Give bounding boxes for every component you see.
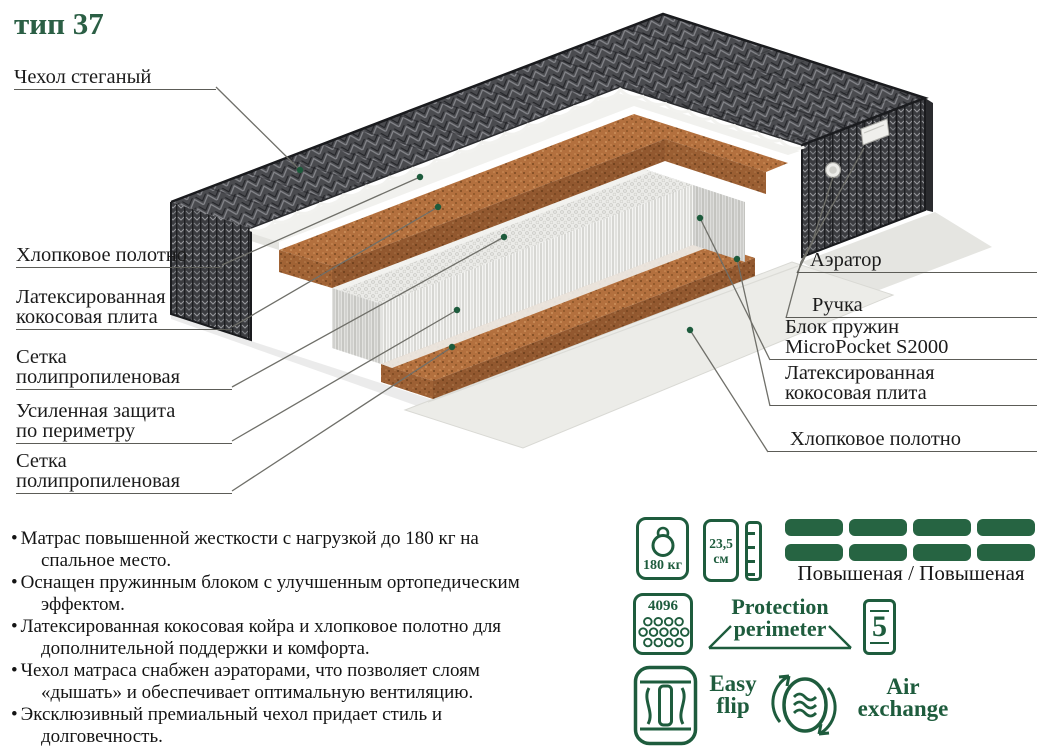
firmness-bars-icon — [785, 519, 1037, 561]
firmness-bar — [849, 544, 907, 561]
label-handle: Ручка — [786, 292, 1037, 318]
badge-max-weight: 180 кг — [636, 517, 689, 580]
label-aerator: Аэратор — [797, 247, 1037, 273]
firmness-bar — [913, 519, 971, 536]
feature-list: Матрас повышенной жесткости с нагрузкой … — [4, 528, 526, 748]
label-cotton-fabric-right: Хлопковое полотно — [768, 426, 1037, 452]
firmness-label: Повышеная / Повышеная — [783, 561, 1039, 586]
label-perimeter-protection: Усиленная защита по периметру — [16, 398, 232, 444]
badge-springs-count: 4096 — [633, 593, 693, 655]
firmness-bar — [977, 544, 1035, 561]
page-title: тип 37 — [14, 6, 104, 42]
label-cotton-fabric-left: Хлопковое полотно — [16, 238, 222, 268]
list-item: Чехол матраса снабжен аэраторами, что по… — [4, 660, 526, 704]
springs-dots-icon — [636, 616, 690, 652]
aerator — [826, 163, 841, 178]
label-quilted-cover: Чехол стеганый — [14, 58, 216, 90]
firmness-bar — [913, 544, 971, 561]
label-spring-block: Блок пружин MicroPocket S2000 — [770, 318, 1037, 360]
badge-protection-perimeter: Protection perimeter — [705, 596, 855, 652]
firmness-bar — [849, 519, 907, 536]
label-polypropylene-mesh-1: Сетка полипропиленовая — [16, 342, 232, 390]
label-coconut-plate-left: Латексированная кокосовая плита — [16, 282, 232, 330]
firmness-bar — [785, 544, 843, 561]
easy-flip-label: Easy flip — [702, 673, 764, 717]
easy-flip-icon — [633, 665, 698, 746]
list-item: Оснащен пружинным блоком с улучшенным ор… — [4, 572, 526, 616]
firmness-bar — [785, 519, 843, 536]
list-item: Матрас повышенной жесткости с нагрузкой … — [4, 528, 526, 572]
kettlebell-icon — [648, 524, 678, 558]
label-polypropylene-mesh-2: Сетка полипропиленовая — [16, 448, 232, 494]
badge-height: 23,5 см — [703, 519, 739, 582]
ruler-icon — [745, 521, 762, 581]
air-exchange-icon — [768, 662, 840, 748]
list-item: Латексированная кокосовая койра и хлопко… — [4, 616, 526, 660]
list-item: Эксклюзивный премиальный чехол придает с… — [4, 704, 526, 748]
label-coconut-plate-right: Латексированная кокосовая плита — [770, 364, 1037, 406]
mattress-product-diagram: тип 37 Чехол стеганый Хлопковое полотно … — [0, 0, 1039, 752]
firmness-bar — [977, 519, 1035, 536]
badge-five-zones: 5 — [863, 599, 896, 655]
air-exchange-label: Air exchange — [842, 676, 964, 720]
